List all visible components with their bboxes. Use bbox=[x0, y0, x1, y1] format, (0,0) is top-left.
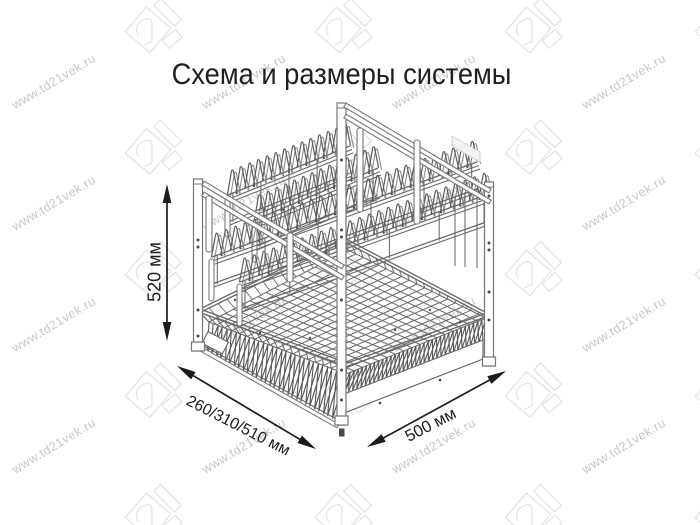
svg-text:www.td21vek.ru: www.td21vek.ru bbox=[9, 294, 99, 356]
svg-text:520 мм: 520 мм bbox=[145, 242, 165, 302]
svg-text:www.td21vek.ru: www.td21vek.ru bbox=[579, 173, 669, 235]
svg-text:www.td21vek.ru: www.td21vek.ru bbox=[579, 416, 669, 478]
svg-text:www.td21vek.ru: www.td21vek.ru bbox=[579, 294, 669, 356]
svg-text:www.td21vek.ru: www.td21vek.ru bbox=[9, 173, 99, 235]
svg-text:www.td21vek.ru: www.td21vek.ru bbox=[9, 416, 99, 478]
